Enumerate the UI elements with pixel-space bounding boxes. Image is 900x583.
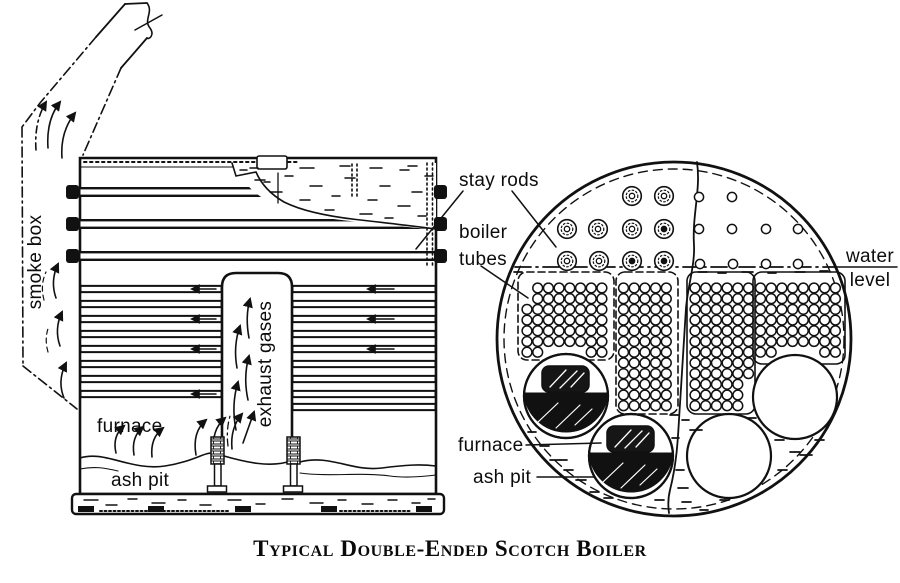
boiler-tubes-label: boiler tubes: [459, 219, 507, 273]
water-level-label-top: water: [842, 246, 898, 268]
boiler-diagram: [0, 0, 900, 583]
bridge-supports: [208, 437, 303, 492]
furnace-label-side: furnace: [97, 416, 162, 438]
ash-pit-label-side: ash pit: [111, 470, 169, 492]
figure-caption: Typical Double-Ended Scotch Boiler: [0, 536, 900, 562]
water-level-label-bottom: level: [842, 270, 898, 292]
shell-cutaway: [232, 156, 436, 266]
exhaust-gases-label: exhaust gases: [255, 301, 277, 427]
boiler-figure: smoke box exhaust gases furnace ash pit …: [0, 0, 900, 583]
leader-stay-rods-right: [512, 191, 556, 247]
end-view-internals: [514, 187, 845, 510]
manhole-plate: [257, 156, 287, 169]
ash-pit-label-end: ash pit: [473, 467, 531, 489]
smoke-box-label: smoke box: [25, 215, 47, 310]
side-view-drawing: [22, 3, 447, 514]
stay-rods-label: stay rods: [459, 170, 539, 192]
end-view-drawing: [416, 162, 897, 516]
furnace-label-end: furnace: [458, 435, 523, 457]
